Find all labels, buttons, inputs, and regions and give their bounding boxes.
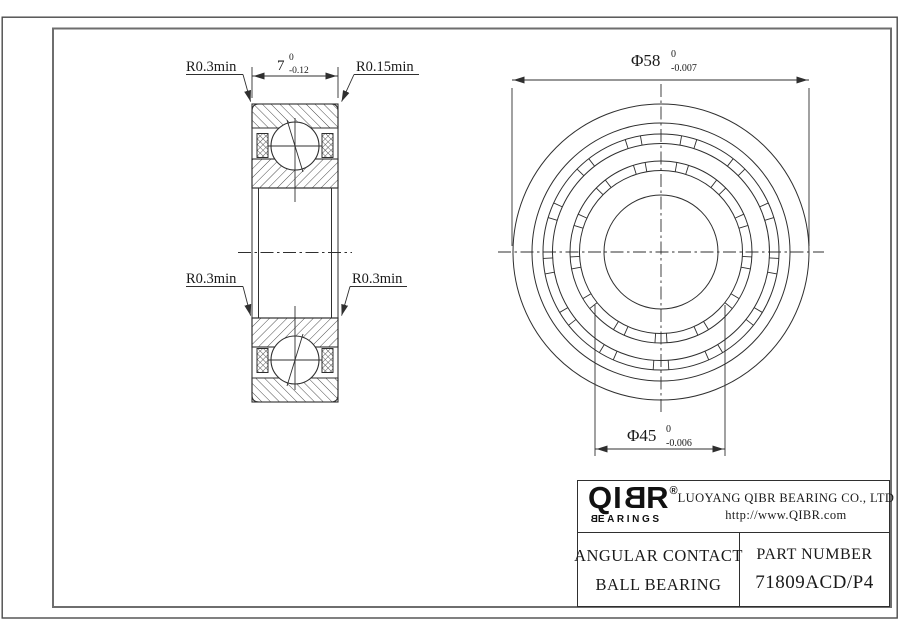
registered-mark: ® bbox=[670, 485, 678, 497]
label-r-mid-right: R0.3min bbox=[352, 271, 403, 287]
front-view: Φ58 0 -0.007 Φ45 0 -0.006 bbox=[498, 49, 824, 456]
part-number-cell: PART NUMBER 71809ACD/P4 bbox=[740, 533, 889, 607]
dim-width-tol-lower: -0.12 bbox=[289, 66, 309, 76]
dim-bore-value: Φ45 bbox=[627, 426, 656, 445]
company-logo: QIBR® BEARINGS bbox=[578, 481, 678, 532]
dim-bore-tol-upper: 0 bbox=[666, 424, 671, 435]
cage-lower-left bbox=[257, 349, 268, 373]
cage-lower-right bbox=[322, 349, 333, 373]
part-number-label: PART NUMBER bbox=[756, 546, 872, 564]
logo-subtext: BEARINGS bbox=[588, 514, 678, 525]
dim-od-tol-lower: -0.007 bbox=[671, 63, 697, 74]
logo-text: QIBR bbox=[588, 480, 670, 515]
product-name-line1: ANGULAR CONTACT bbox=[574, 546, 743, 566]
dim-bore-tol-lower: -0.006 bbox=[666, 438, 692, 449]
section-lower bbox=[252, 306, 338, 402]
cage-upper-right bbox=[322, 134, 333, 158]
company-info: LUOYANG QIBR BEARING CO., LTD http://www… bbox=[678, 481, 899, 532]
dim-od-tol-upper: 0 bbox=[671, 49, 676, 60]
dim-width-tol-upper: 0 bbox=[289, 53, 294, 63]
bore-lines bbox=[252, 189, 338, 318]
label-r-top-left: R0.3min bbox=[186, 59, 237, 75]
drawing-page: 7 0 -0.12 R0.3min R0.15min R0.3min R0.3m… bbox=[0, 0, 900, 636]
company-name: LUOYANG QIBR BEARING CO., LTD bbox=[678, 491, 895, 506]
section-view: 7 0 -0.12 R0.3min R0.15min R0.3min R0.3m… bbox=[186, 53, 419, 402]
section-upper bbox=[252, 104, 338, 202]
product-name-line2: BALL BEARING bbox=[596, 575, 722, 595]
company-website: http://www.QIBR.com bbox=[725, 508, 846, 523]
dim-od-value: Φ58 bbox=[631, 51, 660, 70]
label-r-mid-left: R0.3min bbox=[186, 271, 237, 287]
part-number-value: 71809ACD/P4 bbox=[755, 572, 873, 594]
title-block-body: ANGULAR CONTACT BALL BEARING PART NUMBER… bbox=[578, 533, 889, 607]
cage-upper-left bbox=[257, 134, 268, 158]
title-block: QIBR® BEARINGS LUOYANG QIBR BEARING CO.,… bbox=[577, 480, 890, 607]
dim-width-value: 7 bbox=[277, 58, 285, 74]
label-r-top-right: R0.15min bbox=[356, 59, 414, 75]
title-block-header: QIBR® BEARINGS LUOYANG QIBR BEARING CO.,… bbox=[578, 481, 889, 533]
product-name-cell: ANGULAR CONTACT BALL BEARING bbox=[578, 533, 740, 607]
